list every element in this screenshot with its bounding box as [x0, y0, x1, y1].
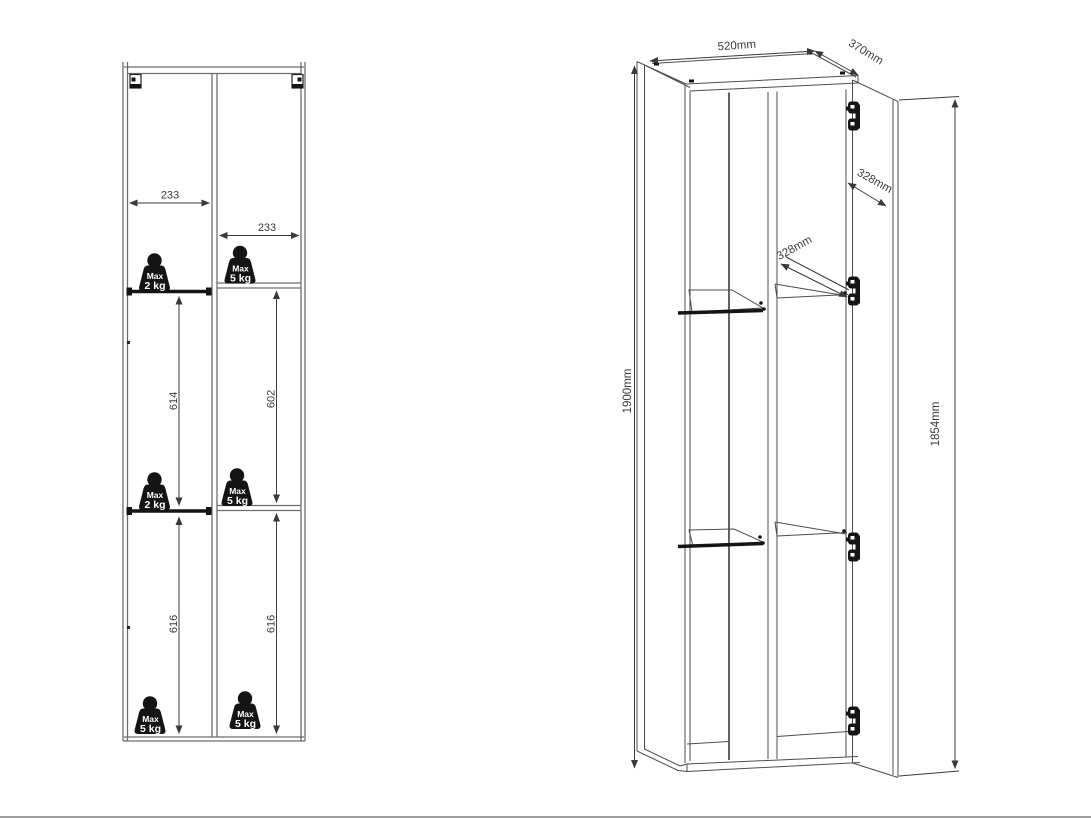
technical-drawing-page: Max 2 kg Max 5 kg Max 2 kg Max 5 kg Max …: [0, 0, 1091, 818]
screw-dot: [807, 52, 812, 55]
dim-label: 602: [266, 390, 278, 408]
max-weight-icon: Max 5 kg: [225, 246, 256, 285]
shelf-3d-lower-right: [775, 522, 847, 536]
max-weight-icon: Max 5 kg: [230, 691, 261, 730]
dimension-height-door: 1854mm: [899, 97, 959, 777]
dim-label: 328mm: [775, 234, 814, 263]
dim-label: 520mm: [717, 39, 756, 54]
max-weight-icon: Max 2 kg: [139, 472, 170, 511]
dim-label: 1900mm: [622, 369, 634, 414]
dim-label: 616: [266, 615, 278, 633]
dimension-width-right: 233: [220, 222, 300, 236]
cam-dot: [127, 626, 130, 629]
kg-label: 5 kg: [235, 718, 256, 730]
shelf-3d-lower-left: [678, 529, 765, 547]
kg-label: 5 kg: [227, 495, 248, 507]
cabinet-bottom: [678, 732, 860, 772]
shelf-3d-upper-right: [775, 284, 848, 298]
cabinet-3d: [637, 52, 898, 778]
max-weight-icon: Max 2 kg: [139, 253, 170, 292]
wall-bracket-icon: [292, 75, 303, 89]
dim-label: 328mm: [855, 167, 894, 196]
max-weight-icon: Max 5 kg: [222, 468, 253, 507]
dimension-top-width: 520mm: [650, 39, 815, 61]
dimension-hinge-right: 328mm: [848, 167, 894, 206]
dimension-bottom-right: 616: [266, 514, 278, 734]
dimension-mid-left: 614: [168, 297, 180, 506]
dim-label: 370mm: [846, 37, 885, 67]
dim-label: 233: [161, 190, 179, 202]
dim-label: 616: [168, 615, 180, 633]
cam-dot: [127, 341, 130, 344]
kg-label: 2 kg: [144, 280, 165, 292]
dimension-width-left: 233: [130, 190, 210, 204]
front-view: Max 2 kg Max 5 kg Max 2 kg Max 5 kg Max …: [123, 62, 305, 741]
max-weight-icon: Max 5 kg: [135, 696, 166, 735]
dimension-top-depth: 370mm: [815, 37, 885, 75]
kg-label: 5 kg: [140, 723, 161, 735]
shelf-3d-upper-left: [678, 290, 766, 313]
kg-label: 2 kg: [144, 499, 165, 511]
screw-dot: [689, 80, 694, 83]
cabinet-frame: [123, 62, 305, 741]
wardrobe-drawing: Max 2 kg Max 5 kg Max 2 kg Max 5 kg Max …: [0, 0, 1091, 818]
dim-label: 1854mm: [930, 402, 942, 447]
screw-dot: [654, 63, 659, 66]
dim-label: 614: [168, 392, 180, 410]
dimension-mid-right: 602: [266, 291, 278, 503]
center-divider: [212, 74, 217, 738]
wall-bracket-icon: [130, 75, 141, 89]
dimension-height-outer: 1900mm: [622, 66, 635, 768]
dim-label: 233: [258, 222, 276, 234]
kg-label: 5 kg: [230, 273, 251, 285]
dimension-hinge-mid: 328mm: [775, 234, 849, 297]
dimension-bottom-left: 616: [168, 517, 180, 734]
screw-dot: [840, 72, 845, 75]
perspective-view: 520mm 370mm 1900mm 1854mm 328mm 328mm: [622, 37, 959, 777]
